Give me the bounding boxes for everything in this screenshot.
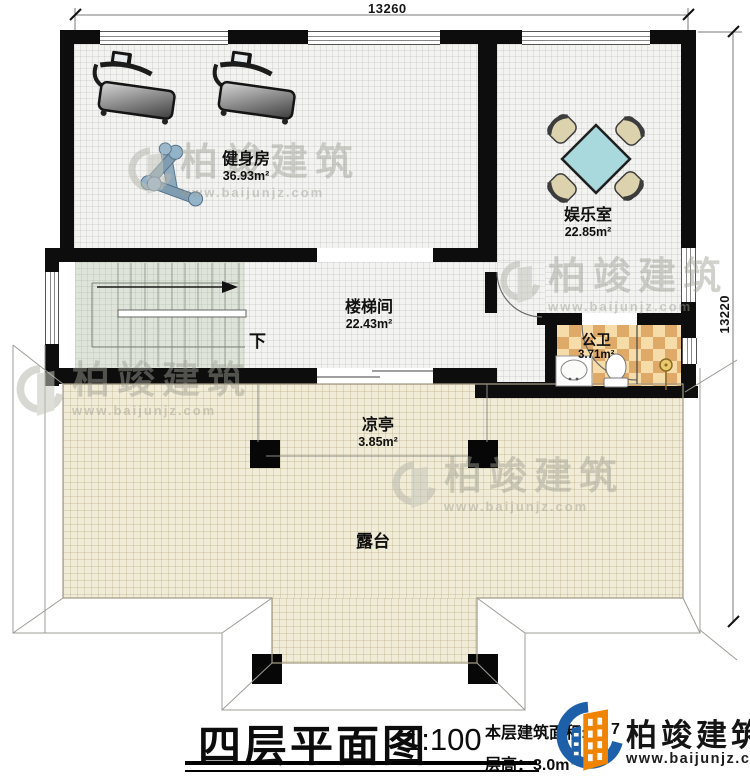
terrace-bump-floor [272, 598, 477, 663]
wall-divider [478, 44, 497, 250]
pavilion-column-left [250, 440, 280, 468]
window-top-1 [100, 31, 228, 45]
dimension-top: 13260 [368, 1, 407, 16]
label-pavilion: 凉亭 3.85m² [348, 417, 408, 449]
terrace-name: 露台 [356, 532, 390, 551]
window-right [681, 248, 696, 302]
company-logo-name: 柏竣建筑 [626, 710, 750, 755]
label-recreation: 娱乐室 22.85m² [552, 207, 624, 239]
floor-plan-canvas: 柏竣建筑 www.baijunjz.com 柏竣建筑 www.baijunjz.… [0, 0, 750, 784]
wall-top-3 [440, 30, 522, 44]
window-top-3 [522, 31, 650, 45]
terrace-door-threshold [317, 371, 433, 377]
window-bath [682, 338, 697, 364]
gym-floor [74, 44, 478, 248]
wall-bath-bottom [545, 386, 698, 398]
label-bathroom: 公卫 3.71m² [578, 333, 614, 362]
wall-bath-top-b [637, 313, 683, 325]
label-stairs-down: 下 [249, 332, 266, 351]
recreation-name: 娱乐室 [552, 207, 624, 225]
label-terrace: 露台 [356, 532, 390, 551]
gym-area: 36.93m² [222, 169, 270, 183]
wall-gym-bottom-b [433, 248, 497, 262]
recreation-area: 22.85m² [552, 225, 624, 239]
terrace-column-right [468, 654, 498, 684]
pavilion-column-right [468, 440, 498, 468]
company-logo-url: www.baijunjz.com [626, 751, 750, 767]
wall-right-upper [681, 30, 696, 248]
window-top-2 [308, 31, 440, 45]
stairwell-area: 22.43m² [345, 317, 393, 331]
label-gym: 健身房 36.93m² [222, 151, 270, 183]
wall-bath-top-a [537, 313, 582, 325]
window-stair-left [45, 272, 59, 344]
plan-scale: 1:100 [404, 722, 482, 758]
stairwell-name: 楼梯间 [345, 299, 393, 317]
pavilion-area: 3.85m² [348, 435, 408, 449]
title-underline-thin [185, 770, 539, 772]
stairs-down-text: 下 [249, 332, 266, 351]
wall-gym-bottom-a [45, 248, 317, 262]
gym-name: 健身房 [222, 151, 270, 169]
stairs-floor [75, 262, 245, 368]
wall-left [60, 30, 74, 262]
bathroom-name: 公卫 [578, 333, 614, 349]
wall-top-2 [228, 30, 308, 44]
dimension-right: 13220 [717, 295, 732, 334]
label-stairwell: 楼梯间 22.43m² [345, 299, 393, 331]
bathroom-area: 3.71m² [578, 349, 614, 362]
title-underline-thick [185, 761, 537, 765]
wall-divider-stub [485, 272, 497, 313]
terrace-column-left [252, 654, 282, 684]
wall-hall-bottom-a [45, 368, 317, 384]
bathroom-floor [557, 325, 683, 386]
pavilion-name: 凉亭 [348, 417, 408, 435]
company-logo-icon [552, 700, 624, 780]
